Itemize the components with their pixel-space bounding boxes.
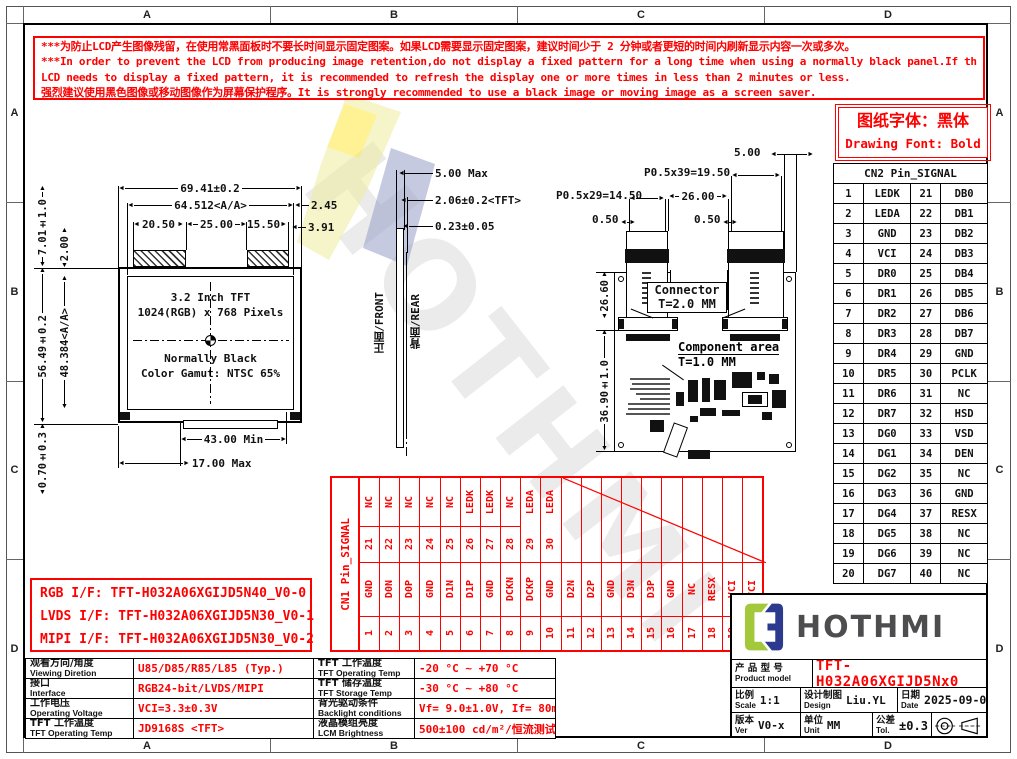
cn2-signal: DG5 bbox=[863, 524, 911, 544]
cn2-pin: 31 bbox=[911, 384, 941, 404]
spec-value: RGB24-bit/LVDS/MIPI bbox=[134, 679, 314, 699]
cn2-signal: DR5 bbox=[863, 364, 911, 384]
dim-05r-line: ◄► bbox=[722, 217, 738, 228]
cn1-pin-lower: 1 bbox=[360, 616, 379, 650]
cn1-signal-lower: GND bbox=[420, 562, 439, 616]
projection-symbol-cell bbox=[931, 713, 986, 738]
cn2-pin: 14 bbox=[834, 444, 864, 464]
arrow-right: ► bbox=[658, 193, 665, 204]
projection-symbol-icon bbox=[935, 716, 983, 736]
cn2-signal: DG4 bbox=[863, 504, 911, 524]
cn2-signal: GND bbox=[941, 484, 988, 504]
cn2-table-title: CN2 Pin_SIGNAL bbox=[834, 164, 988, 184]
ver-unit-tol-row: 版本Ver V0-x 单位Unit MM 公差Tol. ±0.3 bbox=[732, 713, 986, 738]
cn1-signal-lower: GND bbox=[602, 562, 621, 616]
arrow-left: ◄ bbox=[294, 200, 301, 211]
cn2-signal: DB7 bbox=[941, 324, 988, 344]
cn2-pin: 6 bbox=[834, 284, 864, 304]
bottom-tab bbox=[183, 420, 278, 429]
cn1-signal-upper: LEDK bbox=[481, 478, 500, 526]
spec-value: 500±100 cd/m²/恒流测试 bbox=[415, 719, 556, 739]
cn2-signal: GND bbox=[863, 224, 911, 244]
cn1-table-title: CN1 Pin_SIGNAL bbox=[332, 478, 359, 650]
zone-letter: D bbox=[764, 738, 1011, 753]
bezel-corner-right bbox=[290, 412, 300, 420]
dim-thickness-tft: ◄2.06±0.2<TFT> bbox=[400, 195, 550, 206]
cn2-row: 20 DG7 40 NC bbox=[834, 564, 988, 584]
cn1-pin-lower: 3 bbox=[400, 616, 419, 650]
cn2-pin: 23 bbox=[911, 224, 941, 244]
arrow-left: ◄ bbox=[400, 195, 407, 206]
cn1-pin-lower: 2 bbox=[380, 616, 399, 650]
cn2-pin: 29 bbox=[911, 344, 941, 364]
cn1-pin-upper: 23 bbox=[400, 526, 419, 562]
cn1-pin-lower: 5 bbox=[441, 616, 460, 650]
cn1-signal-lower: DCKN bbox=[501, 562, 520, 616]
cn2-row: 12 DR7 32 HSD bbox=[834, 404, 988, 424]
fpc-strip-left bbox=[133, 250, 186, 267]
warning-line: 强烈建议使用黑色图像或移动图像作为屏幕保护程序。It is strongly r… bbox=[41, 85, 977, 100]
cn2-pin: 32 bbox=[911, 404, 941, 424]
cn1-pin-lower: 13 bbox=[602, 616, 621, 650]
drawing-sheet: HOTHMI ABCD ABCD ABCD ABCD ***为防止LCD产生图像… bbox=[0, 0, 1017, 759]
zone-letter: C bbox=[6, 381, 23, 560]
cn1-pin-upper: 29 bbox=[521, 526, 540, 562]
arrow-left: ◄ bbox=[291, 222, 298, 233]
dim-step-height: ▲2.00▼ bbox=[58, 228, 71, 268]
arrow-right: ► bbox=[774, 170, 781, 181]
cn2-signal: NC bbox=[941, 524, 988, 544]
dim-seg3: 15.50► bbox=[247, 219, 289, 230]
cn2-pin: 38 bbox=[911, 524, 941, 544]
cn1-pin-upper: 28 bbox=[501, 526, 520, 562]
cn2-pin: 13 bbox=[834, 424, 864, 444]
spec-row: 接口Interface RGB24-bit/LVDS/MIPI TFT 储存温度… bbox=[26, 679, 556, 699]
zone-letter: C bbox=[517, 6, 764, 23]
dim-total-width: ◄69.41±0.2► bbox=[118, 183, 302, 194]
cn2-row: 19 DG6 39 NC bbox=[834, 544, 988, 564]
zone-letter: A bbox=[988, 23, 1011, 202]
arrow-right: ► bbox=[731, 217, 738, 228]
dim-seg1: ◄20.50► bbox=[133, 219, 186, 230]
cn1-pin-upper: 27 bbox=[481, 526, 500, 562]
cn2-pin: 11 bbox=[834, 384, 864, 404]
zone-letter: A bbox=[23, 738, 270, 753]
cn1-pin-upper: 26 bbox=[461, 526, 480, 562]
arrow-left: ◄ bbox=[629, 193, 636, 204]
cn2-pin: 33 bbox=[911, 424, 941, 444]
image-retention-warning: ***为防止LCD产生图像残留，在使用常黑面板时不要长时间显示固定图案。如果LC… bbox=[33, 36, 985, 100]
spec-row: 观看方向/角度Viewing Diretion U85/D85/R85/L85 … bbox=[26, 659, 556, 679]
spec-label: 接口Interface bbox=[26, 679, 134, 699]
interface-variants-box: RGB I/F: TFT-H032A06XGIJD5N40_V0-0LVDS I… bbox=[30, 578, 312, 652]
cn1-pin-upper: 24 bbox=[420, 526, 439, 562]
center-mark bbox=[205, 335, 216, 346]
spec-table: 观看方向/角度Viewing Diretion U85/D85/R85/L85 … bbox=[25, 658, 556, 739]
zone-letter: A bbox=[6, 23, 23, 202]
cn1-signal-lower: D0P bbox=[400, 562, 419, 616]
zone-letter: B bbox=[988, 202, 1011, 381]
spec-value: -30 °C ~ +80 °C bbox=[415, 679, 556, 699]
cn2-signal: DG2 bbox=[863, 464, 911, 484]
zone-band-top: ABCD bbox=[23, 6, 1011, 23]
cn2-row: 10 DR5 30 PCLK bbox=[834, 364, 988, 384]
cn2-pin: 21 bbox=[911, 184, 941, 204]
arrow-left: ◄ bbox=[127, 200, 134, 211]
cn1-signal-lower: D3P bbox=[642, 562, 661, 616]
cn2-signal: VCI bbox=[863, 244, 911, 264]
cn2-signal: HSD bbox=[941, 404, 988, 424]
zone-letter: B bbox=[6, 202, 23, 381]
cn2-pin: 25 bbox=[911, 264, 941, 284]
cn1-pin-table: CN1 Pin_SIGNAL NC 21 GND 1 NC 22 D0N 2 bbox=[330, 476, 764, 652]
cn1-signal-lower: D0N bbox=[380, 562, 399, 616]
cn2-signal: DR0 bbox=[863, 264, 911, 284]
dim-36-90: ▲36.90±1.0▼ bbox=[598, 330, 611, 452]
arrow-left: ◄ bbox=[770, 149, 777, 160]
cn1-pin-lower: 7 bbox=[481, 616, 500, 650]
spec-label: 液晶模组亮度LCM Brightness bbox=[314, 719, 415, 739]
zone-letter: C bbox=[517, 738, 764, 753]
dim-thickness-pol: ◄0.23±0.05 bbox=[402, 221, 532, 232]
dim-aa-width: ◄64.512<A/A>► bbox=[127, 200, 294, 211]
cn1-signal-lower: NC bbox=[683, 562, 702, 616]
design-cell: 设计制图Design Liu.YL bbox=[800, 688, 897, 712]
zone-letter: C bbox=[988, 381, 1011, 560]
cn2-signal: LEDA bbox=[863, 204, 911, 224]
dim-thickness-max: ◄5.00 Max bbox=[398, 168, 528, 179]
cn2-pin: 20 bbox=[834, 564, 864, 584]
cn2-pin: 28 bbox=[911, 324, 941, 344]
cn2-signal: DR6 bbox=[863, 384, 911, 404]
dim-total-height: ▲56.49±0.2▼ bbox=[36, 268, 49, 424]
cn1-pin-lower: 18 bbox=[703, 616, 722, 650]
cn2-signal: DB6 bbox=[941, 304, 988, 324]
cn1-column: NC 28 DCKN 8 bbox=[500, 478, 520, 650]
cn2-pin: 9 bbox=[834, 344, 864, 364]
cn1-pin-lower: 4 bbox=[420, 616, 439, 650]
cn1-column: NC 21 GND 1 bbox=[359, 478, 379, 650]
arrow-right: ► bbox=[295, 183, 302, 194]
cn1-pin-lower: 6 bbox=[461, 616, 480, 650]
cn2-row: 7 DR2 27 DB6 bbox=[834, 304, 988, 324]
cn2-pin: 7 bbox=[834, 304, 864, 324]
tolerance-cell: 公差Tol. ±0.3 bbox=[872, 713, 931, 738]
dim-right-bottom: ◄3.91 bbox=[291, 222, 340, 233]
cn2-pin: 2 bbox=[834, 204, 864, 224]
brand-wordmark: HOTHMI bbox=[796, 610, 945, 645]
cn2-row: 13 DG0 33 VSD bbox=[834, 424, 988, 444]
cn1-column: LEDA 30 GND 10 bbox=[540, 478, 560, 650]
font-note-cn: 图纸字体：黑体 bbox=[839, 108, 987, 134]
arrow-right: ► bbox=[177, 219, 184, 230]
cn1-column: NC 23 D0P 3 bbox=[399, 478, 419, 650]
cn2-pin: 16 bbox=[834, 484, 864, 504]
cn2-signal: DB5 bbox=[941, 284, 988, 304]
cn2-pin: 19 bbox=[834, 544, 864, 564]
cn2-signal: DB0 bbox=[941, 184, 988, 204]
arrow-left: ◄ bbox=[118, 183, 125, 194]
cn2-pin: 35 bbox=[911, 464, 941, 484]
spec-value: VCI=3.3±0.3V bbox=[134, 699, 314, 719]
spec-label: 背光驱动条件Backlight conditions bbox=[314, 699, 415, 719]
arrow-right: ► bbox=[280, 434, 287, 445]
cn2-row: 4 VCI 24 DB3 bbox=[834, 244, 988, 264]
cn1-signal-lower: D2P bbox=[582, 562, 601, 616]
cn2-signal: DR2 bbox=[863, 304, 911, 324]
dim-05-right: 0.50 bbox=[694, 213, 721, 226]
arrow-left: ◄ bbox=[180, 434, 187, 445]
spec-row: TFT 工作温度TFT Operating Temp JD9168S <TFT>… bbox=[26, 719, 556, 739]
cn2-pin: 40 bbox=[911, 564, 941, 584]
fpc-print-right bbox=[750, 272, 759, 306]
arrow-left: ◄ bbox=[402, 221, 409, 232]
dim-p39: P0.5x39=19.50 bbox=[644, 166, 730, 179]
cn1-pin-lower: 14 bbox=[622, 616, 641, 650]
arrow-left: ◄ bbox=[186, 219, 193, 230]
arrow-right: ► bbox=[183, 458, 190, 469]
connector-callout: Connector T=2.0 MM bbox=[647, 282, 727, 313]
cn1-columns: NC 21 GND 1 NC 22 D0N 2 NC 23 D0P 3 bbox=[359, 478, 762, 650]
cn1-pin-upper: 22 bbox=[380, 526, 399, 562]
scale-cell: 比例Scale 1:1 bbox=[732, 688, 800, 712]
front-side-label: 正面/FRONT bbox=[372, 292, 388, 354]
cn1-signal-lower: GND bbox=[360, 562, 379, 616]
warning-line: ***为防止LCD产生图像残留，在使用常黑面板时不要长时间显示固定图案。如果LC… bbox=[41, 39, 977, 54]
zone-letter: D bbox=[988, 559, 1011, 738]
date-cell: 日期Date 2025-09-05 bbox=[897, 688, 986, 712]
cn2-signal: DEN bbox=[941, 444, 988, 464]
fpc-stiffener-left bbox=[625, 249, 669, 263]
rear-side-label: 背面/REAR bbox=[408, 294, 424, 349]
cn1-signal-upper: NC bbox=[501, 478, 520, 526]
cn1-pin-lower: 15 bbox=[642, 616, 661, 650]
cn2-pin: 36 bbox=[911, 484, 941, 504]
arrow-right: ► bbox=[287, 200, 294, 211]
cn1-signal-lower: GND bbox=[481, 562, 500, 616]
cn2-pin: 24 bbox=[911, 244, 941, 264]
cn1-pin-upper: 30 bbox=[541, 526, 560, 562]
cn2-row: 18 DG5 38 NC bbox=[834, 524, 988, 544]
arrow-left: ◄ bbox=[731, 170, 738, 181]
flex-jumper-pad bbox=[650, 420, 664, 432]
cn1-column: NC 24 GND 4 bbox=[419, 478, 439, 650]
spec-value: JD9168S <TFT> bbox=[134, 719, 314, 739]
interface-variant: MIPI I/F: TFT-H032A06XGIJD5N30_V0-2 bbox=[40, 628, 310, 651]
side-profile-backlight bbox=[406, 252, 407, 430]
cn2-pin: 27 bbox=[911, 304, 941, 324]
cn2-row: 8 DR3 28 DB7 bbox=[834, 324, 988, 344]
cn2-pin: 10 bbox=[834, 364, 864, 384]
cn2-signal: RESX bbox=[941, 504, 988, 524]
cn2-pin: 30 bbox=[911, 364, 941, 384]
zone-letter: D bbox=[6, 559, 23, 738]
cn1-signal-lower: DCKP bbox=[521, 562, 540, 616]
cn1-column: LEDA 29 DCKP 9 bbox=[520, 478, 540, 650]
cn2-signal: DB3 bbox=[941, 244, 988, 264]
zone-letter: D bbox=[764, 6, 1011, 23]
hothmi-logo-icon bbox=[738, 601, 790, 653]
arrow-right: ► bbox=[280, 219, 287, 230]
cn1-pin-upper: 21 bbox=[360, 526, 379, 562]
arrow-left: ◄ bbox=[118, 458, 125, 469]
cn1-column: LEDK 26 D1P 6 bbox=[460, 478, 480, 650]
cn2-signal: DB2 bbox=[941, 224, 988, 244]
cn2-row: 6 DR1 26 DB5 bbox=[834, 284, 988, 304]
cn2-pin: 37 bbox=[911, 504, 941, 524]
arrow-left: ◄ bbox=[620, 217, 627, 228]
cn2-pin: 17 bbox=[834, 504, 864, 524]
cn2-pin: 39 bbox=[911, 544, 941, 564]
arrow-right: ► bbox=[807, 149, 814, 160]
cn2-pin: 3 bbox=[834, 224, 864, 244]
version-cell: 版本Ver V0-x bbox=[732, 713, 800, 738]
cn1-signal-upper: NC bbox=[360, 478, 379, 526]
cn1-signal-upper: LEDK bbox=[461, 478, 480, 526]
cn2-pin: 12 bbox=[834, 404, 864, 424]
cn1-signal-upper: NC bbox=[400, 478, 419, 526]
arrow-left: ◄ bbox=[133, 219, 140, 230]
cn2-row: 11 DR6 31 NC bbox=[834, 384, 988, 404]
zone-band-left: ABCD bbox=[6, 23, 23, 738]
cn1-signal-lower: D3N bbox=[622, 562, 641, 616]
cn2-signal: DG3 bbox=[863, 484, 911, 504]
bezel-corner-left bbox=[120, 412, 130, 420]
cn2-pin: 15 bbox=[834, 464, 864, 484]
dim-05l-line: ◄► bbox=[620, 217, 636, 228]
cn1-signal-lower: GND bbox=[662, 562, 681, 616]
cn2-pin: 4 bbox=[834, 244, 864, 264]
cn2-signal: DG1 bbox=[863, 444, 911, 464]
cn1-signal-lower: GND bbox=[541, 562, 560, 616]
dim-17-max: ◄►17.00 Max bbox=[118, 458, 258, 469]
spec-label: TFT 工作温度TFT Operating Temp bbox=[26, 719, 134, 739]
cn1-pin-lower: 12 bbox=[582, 616, 601, 650]
cn2-signal: NC bbox=[941, 384, 988, 404]
flex-jumper-tip bbox=[688, 450, 710, 459]
cn1-pin-lower: 11 bbox=[562, 616, 581, 650]
cn2-signal: VSD bbox=[941, 424, 988, 444]
cn1-signal-upper: NC bbox=[441, 478, 460, 526]
cn1-pin-upper: 25 bbox=[441, 526, 460, 562]
cn1-signal-upper: LEDA bbox=[541, 478, 560, 526]
interface-variant: LVDS I/F: TFT-H032A06XGIJD5N30_V0-1 bbox=[40, 605, 310, 628]
cn2-row: 9 DR4 29 GND bbox=[834, 344, 988, 364]
cn2-signal: DG6 bbox=[863, 544, 911, 564]
cn2-row: 14 DG1 34 DEN bbox=[834, 444, 988, 464]
dim-p39-line: ◄► bbox=[731, 170, 781, 181]
side-profile-glass bbox=[396, 228, 404, 448]
cn2-pin: 26 bbox=[911, 284, 941, 304]
cn1-signal-lower: D2N bbox=[562, 562, 581, 616]
component-area-callout: Component area T=1.0 MM bbox=[678, 340, 779, 369]
cn1-signal-lower: RESX bbox=[703, 562, 722, 616]
cn2-signal: DG7 bbox=[863, 564, 911, 584]
cn2-row: 1 LEDK 21 DB0 bbox=[834, 184, 988, 204]
arrow-left: ◄ bbox=[668, 191, 675, 202]
arrow-left: ◄ bbox=[398, 168, 405, 179]
cn1-column: NC 22 D0N 2 bbox=[379, 478, 399, 650]
title-block: HOTHMI 产 品 型 号Product model TFT-H032A06X… bbox=[730, 593, 988, 738]
cn1-signal-upper: NC bbox=[380, 478, 399, 526]
spec-label: 观看方向/角度Viewing Diretion bbox=[26, 659, 134, 679]
cn2-signal: LEDK bbox=[863, 184, 911, 204]
unit-cell: 单位Unit MM bbox=[800, 713, 872, 738]
cn1-pin-lower: 17 bbox=[683, 616, 702, 650]
cn2-row: 15 DG2 35 NC bbox=[834, 464, 988, 484]
cn2-signal: DB1 bbox=[941, 204, 988, 224]
cn2-signal: PCLK bbox=[941, 364, 988, 384]
cn2-signal: NC bbox=[941, 464, 988, 484]
warning-line: ***In order to prevent the LCD from prod… bbox=[41, 54, 977, 69]
cn2-row: 5 DR0 25 DB4 bbox=[834, 264, 988, 284]
cn1-pin-lower: 16 bbox=[662, 616, 681, 650]
dim-5-line: ◄► bbox=[770, 149, 814, 160]
drawing-font-note: 图纸字体：黑体 Drawing Font: Bold bbox=[838, 107, 988, 158]
zone-letter: B bbox=[270, 738, 517, 753]
fpc-stiffener-right bbox=[727, 249, 785, 263]
cn1-column: LEDK 27 GND 7 bbox=[480, 478, 500, 650]
warning-line: LCD needs to display a fixed pattern, it… bbox=[41, 70, 977, 85]
arrow-right: ► bbox=[721, 191, 728, 202]
zone-band-right: ABCD bbox=[988, 23, 1011, 738]
spec-label: TFT 工作温度TFT Operating Temp bbox=[314, 659, 415, 679]
logo-row: HOTHMI bbox=[732, 595, 986, 660]
cn2-signal: DR3 bbox=[863, 324, 911, 344]
cn2-signal: DG0 bbox=[863, 424, 911, 444]
cn2-signal: DB4 bbox=[941, 264, 988, 284]
cn1-signal-lower: D1P bbox=[461, 562, 480, 616]
font-note-en: Drawing Font: Bold bbox=[839, 134, 987, 154]
spec-row: 工作电压Operating Voltage VCI=3.3±0.3V 背光驱动条… bbox=[26, 699, 556, 719]
cn1-column: NC 25 D1N 5 bbox=[440, 478, 460, 650]
dim-26: ◄26.00► bbox=[668, 191, 728, 202]
arrow-right: ► bbox=[240, 219, 247, 230]
connector-pad-left bbox=[626, 334, 670, 341]
cn2-signal: NC bbox=[941, 544, 988, 564]
zone-letter: A bbox=[23, 6, 270, 23]
dim-p29-line: ◄► bbox=[629, 193, 665, 204]
connector-right bbox=[722, 317, 788, 331]
dim-26-60: ▲26.60▼ bbox=[598, 272, 611, 330]
zone-band-bottom: ABCD bbox=[23, 738, 1011, 753]
cn2-signal: DR4 bbox=[863, 344, 911, 364]
arrow-left: ◄ bbox=[722, 217, 729, 228]
interface-variant: RGB I/F: TFT-H032A06XGIJD5N40_V0-0 bbox=[40, 582, 310, 605]
scale-design-date-row: 比例Scale 1:1 设计制图Design Liu.YL 日期Date 202… bbox=[732, 688, 986, 713]
dim-aa-height: ▲48.384<A/A>▼ bbox=[58, 276, 71, 410]
cn2-pin: 34 bbox=[911, 444, 941, 464]
cn1-signal-upper: LEDA bbox=[521, 478, 540, 526]
cn2-pin: 8 bbox=[834, 324, 864, 344]
dim-right-top: ◄2.45 bbox=[294, 200, 340, 211]
cn2-pin: 1 bbox=[834, 184, 864, 204]
cn2-signal: DR1 bbox=[863, 284, 911, 304]
cn1-signal-upper: NC bbox=[420, 478, 439, 526]
product-model-row: 产 品 型 号Product model TFT-H032A06XGIJD5Nx… bbox=[732, 660, 986, 688]
side-centerline bbox=[406, 430, 407, 458]
cn2-pin-table: CN2 Pin_SIGNAL 1 LEDK 21 DB0 2 LEDA 22 D… bbox=[833, 163, 988, 584]
cn1-signal-lower: D1N bbox=[441, 562, 460, 616]
product-model-value: TFT-H032A06XGIJD5Nx0 bbox=[812, 660, 986, 687]
dim-top-height: ▲7.01±1.0▼ bbox=[36, 186, 49, 268]
dim-05-left: 0.50 bbox=[592, 213, 619, 226]
arrow-right: ► bbox=[629, 217, 636, 228]
connector-left bbox=[618, 317, 678, 331]
spec-label: 工作电压Operating Voltage bbox=[26, 699, 134, 719]
zone-letter: B bbox=[270, 6, 517, 23]
dim-bottom-offset: ▲0.70±0.3▼ bbox=[36, 424, 49, 476]
